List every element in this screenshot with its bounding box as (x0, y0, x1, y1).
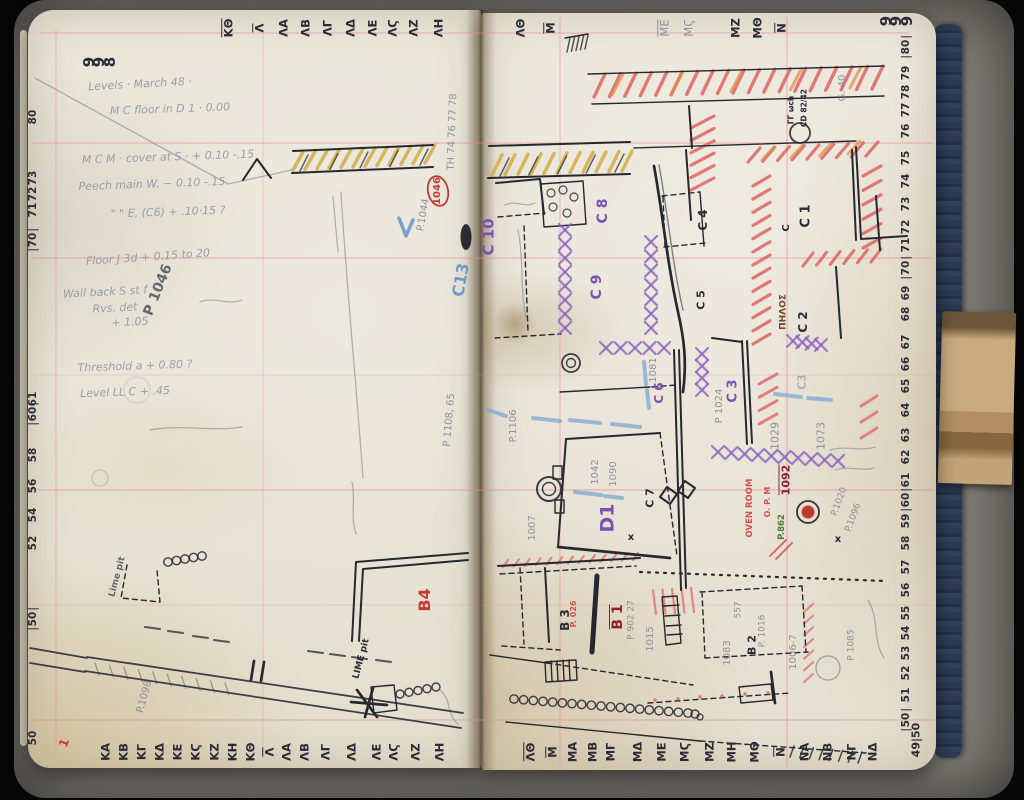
grid-letter-top: ΜΕ (657, 19, 671, 36)
grid-number-right: 65 (901, 379, 912, 394)
grid-number-right: 67 (901, 335, 912, 350)
grid-number-left: 50 (28, 609, 39, 630)
grid-number-left: 54 (28, 508, 39, 523)
plan-label: C 4 (697, 209, 709, 230)
grid-letter-top: ΜΘ (752, 17, 764, 38)
level-note-line: Level LL C + .45 (80, 385, 170, 399)
plan-label: 1092 (779, 465, 792, 496)
grid-letter-bottom: ΝΑ (799, 743, 811, 762)
grid-number-right: 68 (901, 307, 912, 322)
level-note-line: M C M · cover at S · + 0.10 -.15 (82, 148, 255, 165)
plan-label: 1015 (646, 626, 656, 651)
grid-number-right: 53 (901, 646, 912, 661)
grid-letter-bottom: Μ (545, 746, 559, 757)
grid-letter-bottom: ΛΔ (346, 743, 358, 761)
grid-number-left: 72 (28, 187, 39, 202)
plan-label: TH 74 76 77 78 (447, 93, 460, 171)
plan-label: C (782, 224, 792, 231)
grid-number-right: 71 (901, 238, 912, 253)
plan-label: P.1106 (509, 409, 519, 442)
grid-letter-bottom: ΚϚ (190, 743, 202, 760)
grid-number-left: 73 (28, 171, 39, 186)
grid-number-right: 50 (901, 710, 912, 731)
grid-number-right: 66 (901, 357, 912, 372)
grid-number-right: 75 (901, 151, 912, 166)
plan-label: B 3 (559, 609, 571, 631)
page-number-right: 999 (881, 14, 912, 29)
grid-letter-bottom: Ν (773, 747, 787, 757)
grid-number-right: 51 (901, 688, 912, 703)
plan-label: C 9 (590, 275, 604, 300)
grid-number-right: 79 (901, 66, 912, 81)
grid-letter-bottom: ΜΕ (656, 742, 668, 761)
level-note-line: + 1.05 (111, 316, 149, 329)
plan-label: C 1 (800, 204, 813, 227)
plan-label: 1081 (649, 357, 659, 382)
level-note-line: Rvs. det (92, 301, 137, 314)
grid-number-left: 80 (28, 110, 39, 125)
plan-label: Lime pit (108, 556, 127, 598)
grid-letter-bottom: ΜΓ (605, 743, 617, 762)
plan-label: C 10 (482, 218, 497, 255)
grid-letter-bottom: ΝΒ (822, 743, 834, 761)
plan-label: P 1108, 65 (443, 393, 458, 447)
plan-label: P. 026 (570, 601, 578, 628)
plan-label: 1073 (816, 422, 827, 450)
grid-number-right: 62 (901, 450, 912, 465)
grid-letter-bottom: ΜΒ (587, 742, 599, 762)
plan-label: 1007 (528, 515, 538, 540)
plan-label: CD 82/42 (800, 89, 808, 127)
grid-letter-top: ΛΑ (278, 19, 290, 37)
plan-label: C 2 (797, 311, 809, 332)
grid-number-right: 54 (901, 626, 912, 641)
grid-number-left: 70 (28, 230, 39, 251)
grid-letter-bottom: ΜϚ (679, 742, 691, 762)
grid-letter-top: ΛΘ (515, 19, 527, 38)
plan-label: 1046 (433, 177, 443, 205)
grid-number-right: 78 (901, 85, 912, 100)
plan-label: C 6 (653, 382, 665, 403)
plan-label: 1083 (723, 640, 733, 665)
grid-letter-bottom: ΝΔ (867, 743, 879, 762)
plan-label: P 1046 (141, 262, 174, 317)
grid-number-right: 69 (901, 286, 912, 301)
plan-label: P 902 27 (628, 600, 637, 640)
plan-label: P. 1016 (759, 615, 768, 648)
plan-label: ΓΓ ωch (787, 96, 795, 124)
plan-label: 557 (735, 601, 744, 618)
grid-number-right: 55 (901, 606, 912, 621)
plan-label: D1 (599, 504, 618, 533)
notebook-photo: { "pages": { "left_page_number": "998", … (0, 0, 1024, 800)
grid-number-right: 57 (901, 560, 912, 575)
plan-label: C 7 (645, 488, 656, 508)
grid-letter-top: ΛΔ (345, 19, 357, 37)
annotation-layer: ΚΘΛΛΑΛΒΛΓΛΔΛΕΛϚΛΖΛΗΛΘΜΜΕΜϚΜΖΜΘΝΚΑΚΒΚΓΚΔΚ… (0, 0, 1024, 800)
grid-number-right: 52 (901, 666, 912, 681)
grid-letter-top: ΜϚ (683, 19, 695, 36)
grid-letter-bottom: ΛΗ (434, 743, 446, 762)
plan-label: C13 (450, 262, 472, 298)
grid-letter-bottom: ΚΔ (154, 743, 166, 761)
grid-number-right: 70 (901, 258, 912, 279)
grid-letter-bottom: ΚΘ (245, 743, 257, 762)
grid-number-left: 71 (28, 203, 39, 218)
grid-number-left: 50 (28, 731, 39, 746)
plan-label: 1090 (609, 461, 619, 486)
plan-label: LIME pit (352, 638, 371, 680)
grid-number-right: 80 (901, 37, 912, 58)
grid-letter-bottom: ΛΓ (320, 744, 332, 760)
plan-label: P.1020 (831, 486, 850, 517)
plan-label: P 1024 (715, 389, 725, 424)
plan-label: 1029 (770, 422, 781, 450)
plan-label: ΠΗΛΟΣ (780, 294, 789, 330)
grid-number-right: 58 (901, 536, 912, 551)
grid-number-right: 72 (901, 220, 912, 235)
grid-number-right: 76 (901, 124, 912, 139)
grid-letter-bottom: ΝΓ (846, 744, 858, 761)
page-number-left: 998 (84, 55, 115, 70)
plan-label: B 1 (609, 604, 625, 629)
grid-letter-bottom: ΚΕ (172, 744, 184, 761)
grid-number-right: 63 (901, 428, 912, 443)
grid-letter-bottom: ΛΖ (410, 743, 422, 760)
grid-letter-bottom: ΛΕ (371, 744, 383, 761)
grid-letter-top: ΚΘ (221, 19, 235, 38)
grid-letter-bottom: ΜΖ (704, 742, 716, 762)
grid-letter-bottom: ΚΗ (227, 743, 239, 762)
level-note-line: Peech main W. − 0.10 -.15 (78, 176, 225, 192)
grid-letter-top: ΛΖ (408, 19, 420, 36)
plan-label: P 1085 (848, 629, 857, 660)
plan-label: OVEN ROOM (746, 479, 755, 538)
plan-label: O. P. M (764, 487, 772, 518)
grid-letter-bottom: ΚΖ (209, 743, 221, 760)
plan-label: G. 40 (838, 75, 848, 102)
corner-grid-ref: 49|50 (911, 723, 922, 758)
grid-letter-bottom: ΜΔ (632, 742, 644, 762)
grid-number-right: 74 (901, 174, 912, 189)
grid-letter-top: Λ (252, 24, 266, 33)
grid-letter-top: ΛΕ (367, 20, 379, 37)
level-note-line: Floor J 3d + 0.15 to 20 (86, 247, 211, 267)
grid-number-left: 56 (28, 479, 39, 494)
grid-letter-bottom: Λ (262, 748, 276, 757)
grid-letter-bottom: ΛΘ (523, 743, 537, 762)
plan-label: C 5 (696, 290, 707, 310)
grid-letter-bottom: ΛϚ (388, 743, 400, 760)
grid-letter-top: Ν (774, 23, 788, 33)
plan-label: C3 (797, 375, 808, 390)
grid-number-left: 52 (28, 536, 39, 551)
grid-letter-bottom: ΛΑ (281, 743, 293, 761)
plan-label: x (835, 535, 841, 545)
grid-letter-top: ΛΗ (433, 19, 445, 38)
plan-label: P.862 (778, 514, 787, 540)
grid-letter-bottom: ΚΑ (100, 743, 112, 761)
plan-label: x (628, 533, 634, 543)
grid-letter-top: ΛϚ (387, 19, 399, 36)
plan-label: C 3 (727, 379, 740, 402)
grid-number-right: 61 (901, 473, 912, 488)
grid-letter-bottom: ΜΗ (726, 741, 738, 762)
grid-letter-bottom: ΛΒ (299, 743, 311, 761)
grid-letter-bottom: ΚΒ (118, 743, 130, 761)
level-note-line: Wall back S st f (63, 284, 148, 299)
plan-label: B4 (417, 588, 433, 611)
grid-number-left: 60 (28, 404, 39, 425)
plan-label: P.1096 (845, 502, 864, 533)
grid-letter-top: ΛΒ (300, 19, 312, 37)
grid-number-left: 61 (28, 392, 39, 407)
plan-label: C 8 (596, 199, 610, 224)
grid-number-right: 73 (901, 197, 912, 212)
level-note-line: " " E, (C6) + .10·15 ? (110, 204, 225, 219)
grid-letter-bottom: ΜΘ (749, 741, 761, 762)
grid-number-right: 77 (901, 103, 912, 118)
grid-letter-top: ΜΖ (730, 18, 742, 38)
grid-number-right: 59 (901, 514, 912, 529)
level-note-line: Levels · March 48 · (88, 76, 192, 92)
level-note-line: M C floor in D 1 · 0.00 (110, 101, 231, 116)
grid-number-left: 58 (28, 448, 39, 463)
plan-label: 1042 (591, 459, 601, 484)
grid-letter-top: ΛΓ (322, 20, 334, 36)
level-note-line: Threshold a + 0.80 ? (77, 359, 192, 374)
plan-label: P.1098 (136, 680, 154, 715)
plan-label: 1 (57, 737, 71, 749)
grid-number-right: 56 (901, 583, 912, 598)
grid-letter-bottom: ΜΑ (567, 742, 579, 762)
grid-number-right: 64 (901, 403, 912, 418)
plan-label: B 2 (747, 635, 758, 655)
grid-letter-bottom: ΚΓ (136, 744, 148, 760)
grid-letter-top: Μ (543, 22, 557, 33)
plan-label: P.1044 (416, 198, 432, 232)
plan-label: 1006-7 (789, 634, 799, 669)
grid-number-right: 60 (901, 490, 912, 511)
